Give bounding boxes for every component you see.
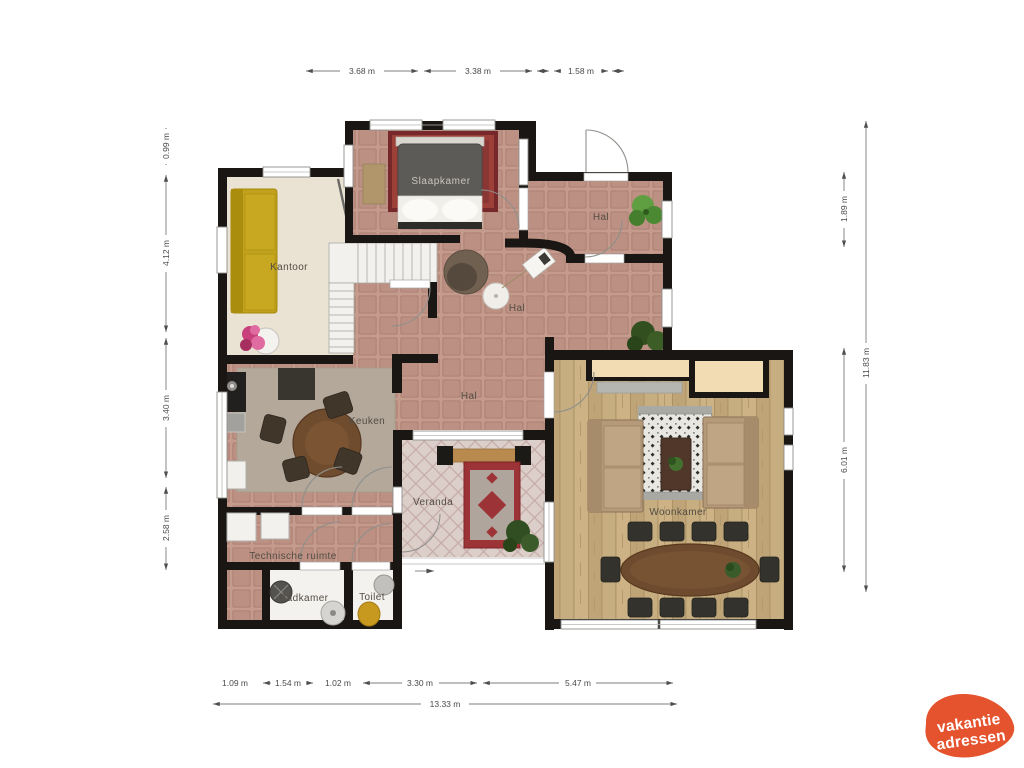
door xyxy=(584,173,628,181)
hal-midden-label: Hal xyxy=(509,303,525,314)
dim-top-1: 3.68 m xyxy=(349,66,375,76)
bath-stool-center xyxy=(330,610,336,616)
dim-bottom-2: 1.54 m xyxy=(275,678,301,688)
kitchen-cabinet xyxy=(278,368,315,400)
dim-right-2: 6.01 m xyxy=(839,447,849,473)
door xyxy=(352,507,392,515)
dim-right-total: 11.83 m xyxy=(861,348,871,378)
dim-right-1: 1.89 m xyxy=(839,196,849,222)
vakantieadressen-logo: vakantie adressen xyxy=(925,694,1014,758)
sink-drain xyxy=(230,384,234,388)
door xyxy=(390,280,430,288)
stair-flight-vertical xyxy=(329,283,354,353)
veranda-label: Veranda xyxy=(413,497,453,508)
door xyxy=(585,254,624,263)
table-dot xyxy=(494,294,498,298)
kantoor-label: Kantoor xyxy=(270,262,308,273)
door-swing-arc xyxy=(586,130,628,172)
dim-bottom-1: 1.09 m xyxy=(222,678,248,688)
window xyxy=(519,139,528,185)
door xyxy=(544,372,554,418)
technische-ruimte-label: Technische ruimte xyxy=(249,551,336,562)
door xyxy=(300,562,340,570)
dim-left-2: 4.12 m xyxy=(161,240,171,266)
window xyxy=(784,445,793,470)
hal-beneden-label: Hal xyxy=(461,391,477,402)
door xyxy=(519,188,528,230)
stair-landing xyxy=(329,243,358,283)
toilet-label: Toilet xyxy=(359,592,385,603)
window xyxy=(784,408,793,435)
dim-left-4: 2.58 m xyxy=(161,515,171,541)
dim-left-3: 3.40 m xyxy=(161,395,171,421)
dim-top-2: 3.38 m xyxy=(465,66,491,76)
woonkamer-label: Woonkamer xyxy=(649,507,707,518)
dim-top-3: 1.58 m xyxy=(568,66,594,76)
window xyxy=(217,227,227,273)
window xyxy=(393,487,402,513)
floorplan-drawing: Slaapkamer Kantoor Hal Hal Hal Keuken Ve… xyxy=(0,0,1024,768)
badkamer-label: Badkamer xyxy=(280,593,329,604)
sideboard xyxy=(597,382,682,393)
builtin-closet xyxy=(592,360,690,377)
dim-left-1: 0.99 m xyxy=(161,133,171,159)
beanbag-chair xyxy=(444,250,488,294)
toilet-bowl xyxy=(358,602,380,626)
door xyxy=(352,562,390,570)
builtin-closet xyxy=(695,361,763,392)
nightstand xyxy=(363,164,385,204)
window xyxy=(662,289,672,327)
sofa-right xyxy=(703,417,758,508)
window xyxy=(662,201,672,238)
door xyxy=(302,507,342,515)
slaapkamer-label: Slaapkamer xyxy=(411,176,470,187)
keuken-label: Keuken xyxy=(349,416,385,427)
stair-flight-horizontal xyxy=(358,243,437,283)
dim-bottom-5: 5.47 m xyxy=(565,678,591,688)
sofa-left xyxy=(588,420,643,512)
dryer xyxy=(261,513,289,539)
floorplan-page: Slaapkamer Kantoor Hal Hal Hal Keuken Ve… xyxy=(0,0,1024,768)
window xyxy=(344,145,353,187)
dim-bottom-3: 1.02 m xyxy=(325,678,351,688)
hal-boven-label: Hal xyxy=(593,212,609,223)
dim-bottom-4: 3.30 m xyxy=(407,678,433,688)
dim-bottom-total: 13.33 m xyxy=(430,699,461,709)
office-sofa xyxy=(231,189,277,313)
washer xyxy=(227,513,256,541)
